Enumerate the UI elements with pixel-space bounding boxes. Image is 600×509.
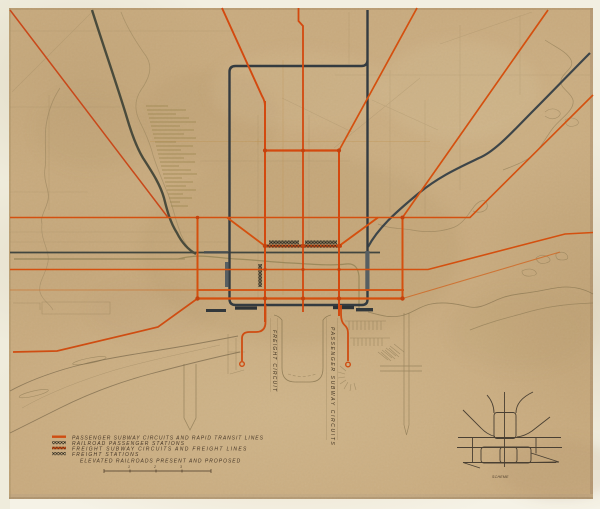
svg-text:2: 2	[153, 465, 156, 469]
svg-text:SCHEME: SCHEME	[492, 475, 509, 479]
svg-text:FREIGHT CIRCUIT: FREIGHT CIRCUIT	[271, 330, 277, 392]
svg-text:ELEVATED RAILROADS PRESENT AND: ELEVATED RAILROADS PRESENT AND PROPOSED	[80, 459, 241, 465]
svg-text:3: 3	[180, 465, 182, 469]
svg-text:PASSENGER SUBWAY CIRCUITS: PASSENGER SUBWAY CIRCUITS	[329, 327, 335, 447]
svg-text:1: 1	[128, 465, 130, 469]
svg-text:FREIGHT STATIONS: FREIGHT STATIONS	[72, 452, 140, 458]
